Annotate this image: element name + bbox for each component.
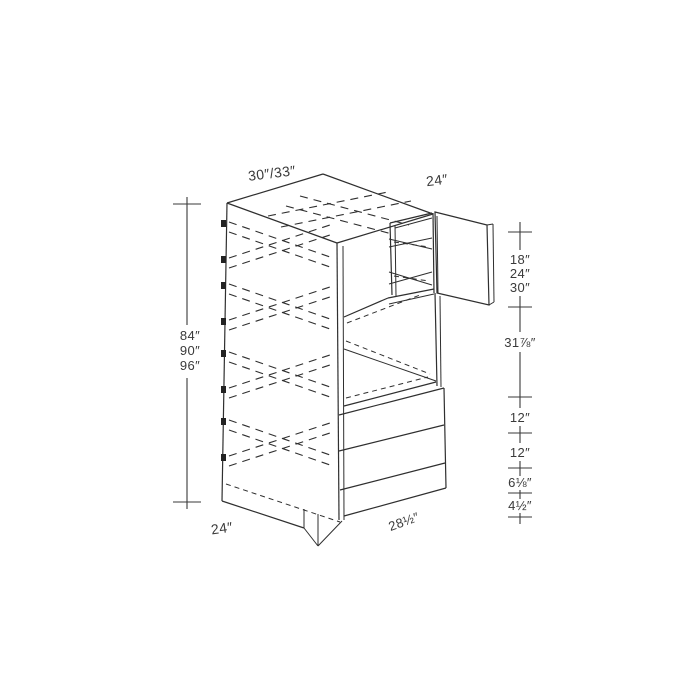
cabinet-top-face [227, 174, 433, 243]
drawer-middle-label: 12″ [510, 445, 530, 460]
front-stile [337, 243, 344, 520]
left-face-shelf-dashes [221, 220, 333, 466]
height-option-3: 96″ [180, 358, 200, 373]
depth-label-top: 24″ [425, 171, 449, 190]
top-dimension-labels: 30″/33″ 24″ [247, 162, 448, 189]
width-label: 30″/33″ [247, 162, 296, 184]
depth-label-bottom: 24″ [210, 519, 234, 538]
diagram-canvas: 84″ 90″ 96″ 18″ 24″ 30″ 31⅞″ 12″ 12″ 6⅛″… [0, 0, 700, 700]
dim-chain-right: 18″ 24″ 30″ 31⅞″ 12″ 12″ 6⅛″ 4½″ [504, 222, 536, 524]
oven-cabinet-drawing: 84″ 90″ 96″ 18″ 24″ 30″ 31⅞″ 12″ 12″ 6⅛″… [0, 0, 700, 700]
oven-cavity [344, 293, 441, 406]
oven-opening-label: 31⅞″ [504, 335, 536, 350]
drawer-bottom-label: 6⅛″ [508, 475, 532, 490]
opening-height-2: 24″ [510, 266, 530, 281]
bottom-width-label: 28½″ [386, 509, 421, 534]
open-door [435, 212, 494, 305]
drawer-stack [339, 388, 446, 516]
opening-height-1: 18″ [510, 252, 530, 267]
opening-height-3: 30″ [510, 280, 530, 295]
dim-height-left: 84″ 90″ 96″ [173, 197, 201, 509]
drawer-top-label: 12″ [510, 410, 530, 425]
toe-kick-label: 4½″ [508, 498, 532, 513]
height-option-2: 90″ [180, 343, 200, 358]
upper-compartment [388, 213, 438, 304]
height-option-1: 84″ [180, 328, 200, 343]
